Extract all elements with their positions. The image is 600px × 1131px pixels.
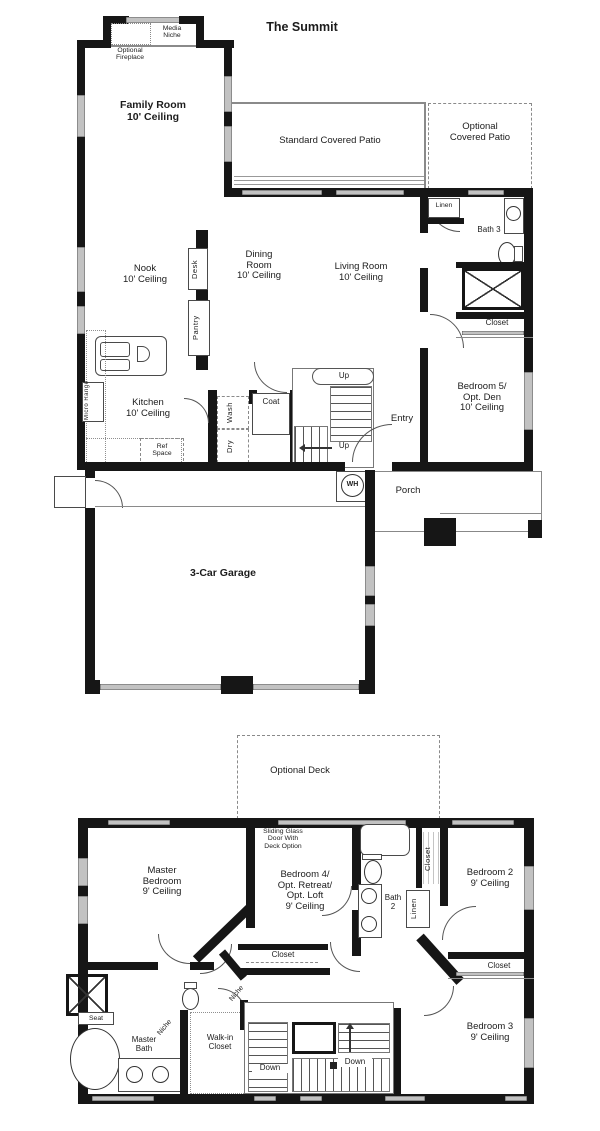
wall-segment: [180, 1010, 188, 1096]
window-segment: [92, 1096, 154, 1101]
dining-room-label: Dining Room 10' Ceiling: [226, 250, 292, 282]
plan-line: [95, 506, 365, 507]
window-segment: [365, 604, 375, 626]
media-niche-label: Media Niche: [148, 25, 196, 40]
down3-label: Down: [338, 1058, 372, 1067]
wall-segment: [420, 268, 428, 312]
wall-segment: [365, 470, 375, 566]
optional-fireplace-label: Optional Fireplace: [104, 47, 156, 62]
wall-segment: [85, 680, 100, 694]
linen2-label: Linen: [410, 894, 424, 924]
second-floor-plan: Optional Deck Sliding Glass Door With De…: [0, 710, 600, 1131]
micro-range-label: Micro Range: [84, 384, 102, 420]
wall-segment: [420, 197, 428, 233]
entry-label: Entry: [378, 414, 426, 425]
wall-segment: [77, 137, 85, 247]
porch-label: Porch: [386, 486, 430, 497]
bath3-shower-icon: [462, 268, 524, 310]
bedroom2-door-arc: [442, 906, 476, 940]
washer-label: Wash: [226, 400, 240, 426]
garage-side-landing: [54, 476, 86, 508]
plan-shape: [514, 246, 523, 262]
porch-post: [528, 520, 542, 538]
bedroom3-label: Bedroom 3 9' Ceiling: [448, 1022, 532, 1043]
window-segment: [224, 126, 232, 162]
desk-label: Desk: [191, 252, 205, 286]
angled-wall: [219, 949, 247, 980]
bath3-label: Bath 3: [466, 226, 512, 235]
closet4-door-arc-right: [330, 942, 360, 972]
plan-line: [424, 102, 426, 190]
bedroom3-door-arc: [424, 986, 454, 1016]
bath2-toilet-icon: [364, 860, 382, 884]
wall-segment: [85, 462, 345, 471]
window-segment: [254, 1096, 276, 1101]
plan-shape: [234, 176, 424, 188]
stairs-down-left-treads: [248, 1022, 288, 1092]
stairwell-opening: [292, 1022, 336, 1054]
nook-label: Nook 10' Ceiling: [108, 264, 182, 285]
porch-pillar: [424, 518, 456, 546]
plan-line: [456, 337, 533, 338]
wall-segment: [420, 348, 428, 470]
master-shower-icon: [66, 974, 108, 1016]
plan-shape: [184, 982, 197, 989]
wall-segment: [428, 218, 464, 224]
optional-patio-outline: [428, 103, 532, 189]
closet-bath-hall-label: Closet: [424, 836, 438, 882]
plan-line: [448, 978, 534, 979]
window-segment: [336, 190, 404, 195]
window-segment: [300, 1096, 322, 1101]
wall-segment: [224, 112, 232, 126]
wall-segment: [196, 290, 208, 300]
bath2-label: Bath 2: [378, 894, 408, 912]
up-upper-label: Up: [332, 372, 356, 381]
plan-line: [304, 447, 332, 449]
wall-segment: [524, 188, 533, 308]
up-lower-label: Up: [332, 442, 356, 451]
window-segment: [77, 95, 85, 137]
wall-segment: [85, 508, 95, 684]
wall-segment: [77, 292, 85, 306]
ref-space-label: Ref Space: [142, 443, 182, 458]
first-floor-plan: Media Niche Optional Fireplace Family Ro…: [0, 0, 600, 710]
window-segment: [224, 76, 232, 112]
master-toilet-icon: [182, 988, 199, 1010]
master-tub-icon: [70, 1028, 120, 1090]
wall-segment: [196, 356, 208, 370]
down-arrow-marker: [330, 1062, 337, 1069]
sliding-glass-note: Sliding Glass Door With Deck Option: [250, 828, 316, 850]
coat-label: Coat: [254, 398, 288, 407]
window-segment: [100, 684, 221, 690]
bath2-sink-icon: [361, 888, 377, 904]
master-sink-icon: [126, 1066, 143, 1083]
plan-line: [349, 1028, 351, 1052]
bath3-sink-icon: [506, 206, 521, 221]
window-segment: [253, 684, 359, 690]
window-segment: [385, 1096, 425, 1101]
wall-segment: [240, 968, 330, 975]
coat-door-arc: [254, 362, 287, 393]
wall-segment: [77, 40, 85, 95]
window-segment: [242, 190, 322, 195]
wall-segment: [221, 676, 253, 694]
plan-shape: [246, 962, 318, 963]
garage-label: 3-Car Garage: [178, 568, 268, 580]
wall-segment: [88, 962, 158, 970]
master-door-arc: [158, 934, 190, 964]
laundry-door-arc: [184, 398, 209, 423]
family-room-label: Family Room 10' Ceiling: [112, 100, 194, 124]
wall-segment: [190, 962, 214, 970]
linen-label: Linen: [428, 202, 460, 209]
wall-segment: [85, 470, 95, 478]
wall-segment: [524, 818, 534, 866]
wall-segment: [365, 626, 375, 684]
window-segment: [456, 972, 524, 976]
window-segment: [505, 1096, 527, 1101]
master-bedroom-label: Master Bedroom 9' Ceiling: [126, 866, 198, 898]
seat-label: Seat: [78, 1015, 114, 1022]
bath2-tub-icon: [360, 824, 410, 856]
optional-fireplace-outline: [111, 23, 151, 45]
plan-line: [232, 102, 426, 104]
wall-segment: [524, 910, 534, 1018]
window-segment: [468, 190, 504, 195]
window-segment: [77, 306, 85, 334]
down2-label: Down: [252, 1064, 288, 1073]
plan-line: [440, 513, 542, 514]
bedroom5-door-arc: [430, 314, 464, 348]
up-arrow-icon: [299, 444, 305, 452]
down-arrow-icon: [346, 1023, 354, 1029]
wall-segment: [224, 42, 232, 76]
bath2-sink2-icon: [361, 916, 377, 932]
master-sink2-icon: [152, 1066, 169, 1083]
wall-segment: [448, 952, 534, 959]
wall-segment: [365, 596, 375, 604]
window-segment: [462, 331, 524, 335]
window-segment: [452, 820, 514, 825]
window-segment: [77, 247, 85, 292]
walkin-closet-label: Walk-in Closet: [194, 1034, 246, 1052]
window-segment: [365, 566, 375, 596]
bedroom2-label: Bedroom 2 9' Ceiling: [448, 868, 532, 889]
window-segment: [78, 858, 88, 886]
wall-segment: [416, 828, 422, 888]
standard-patio-label: Standard Covered Patio: [250, 136, 410, 147]
closet1-label: Closet: [474, 319, 520, 328]
closet-bedroom2-label: Closet: [476, 962, 522, 971]
pantry-label: Pantry: [192, 306, 206, 350]
wall-segment: [392, 462, 533, 471]
closet-bedroom4-label: Closet: [258, 951, 308, 960]
optional-deck-label: Optional Deck: [235, 766, 365, 777]
window-segment: [78, 896, 88, 924]
window-segment: [108, 820, 170, 825]
bedroom5-label: Bedroom 5/ Opt. Den 10' Ceiling: [438, 382, 526, 414]
wall-segment: [440, 828, 448, 906]
wall-segment: [208, 390, 217, 470]
dryer-label: Dry: [226, 434, 240, 458]
water-heater-label: WH: [341, 481, 364, 489]
living-room-label: Living Room 10' Ceiling: [318, 262, 404, 283]
porch-outline: [374, 471, 542, 532]
floorplan-page: The Summit Media Niche Optional Fireplac…: [0, 0, 600, 1131]
wall-segment: [78, 818, 88, 858]
optional-deck-outline: [237, 735, 440, 819]
wall-segment: [78, 886, 88, 896]
optional-patio-label: Optional Covered Patio: [440, 122, 520, 143]
kitchen-label: Kitchen 10' Ceiling: [114, 398, 182, 419]
wall-segment: [196, 230, 208, 248]
garage-side-door-arc: [95, 480, 123, 508]
